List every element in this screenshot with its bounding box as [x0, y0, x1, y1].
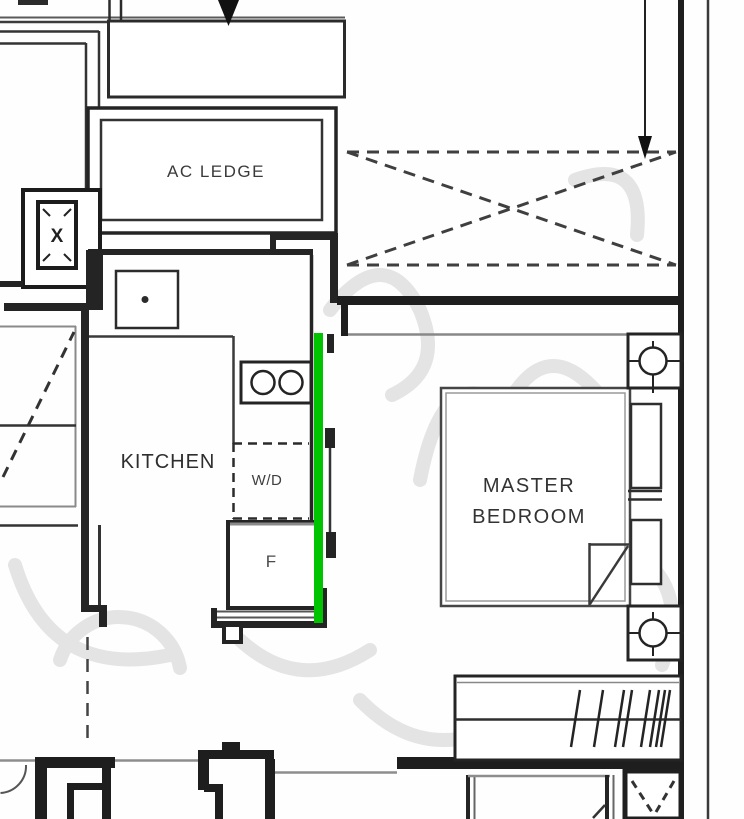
flow-arrowhead-icon: [638, 136, 652, 159]
bottom-center-walls: [198, 742, 397, 819]
nightstand-lower: [631, 520, 661, 584]
balcony-void-hatch: [347, 152, 676, 265]
shaft-x-label: X: [51, 226, 64, 247]
bed: [441, 388, 630, 606]
sliding-door: [325, 334, 336, 558]
flow-arrow: [638, 0, 652, 159]
counter-tab: [224, 627, 241, 642]
hob-icon: [241, 362, 311, 403]
column-symbol-icon: [640, 348, 667, 375]
highlighted-wall-segment[interactable]: [314, 333, 323, 623]
window-column-bottom: [627, 606, 684, 660]
fridge-label: F: [266, 552, 276, 571]
left-bath-room: [0, 250, 107, 746]
kitchen-label: KITCHEN: [121, 451, 216, 473]
nightstand-upper: [628, 404, 662, 500]
kitchen-room: W/D F KITCHEN: [88, 249, 327, 642]
shaft-box-bottom: [625, 771, 681, 819]
master-bedroom-label-line1: MASTER: [483, 475, 575, 497]
master-bedroom-walls: [337, 296, 684, 336]
door-swing-arc: [1, 765, 27, 793]
floorplan-svg: AC LEDGE X: [0, 0, 744, 819]
sink-icon: [116, 271, 178, 328]
floorplan-canvas: AC LEDGE X: [0, 0, 744, 819]
window-column-top: [627, 334, 684, 393]
wall-stub-top-left: [18, 0, 48, 5]
column-symbol-icon: [640, 620, 667, 647]
upper-ledge-box: [109, 21, 345, 97]
wardrobe: [455, 676, 681, 760]
master-bedroom-room: MASTER BEDROOM: [325, 334, 684, 760]
washer-dryer-label: W/D: [252, 472, 283, 489]
bottom-right-walls: [397, 757, 681, 819]
sliding-indicator-dashed: [3, 332, 74, 477]
ac-ledge-label: AC LEDGE: [167, 162, 265, 181]
bottom-left-walls: [0, 757, 198, 819]
master-bedroom-label-line2: BEDROOM: [472, 506, 586, 528]
